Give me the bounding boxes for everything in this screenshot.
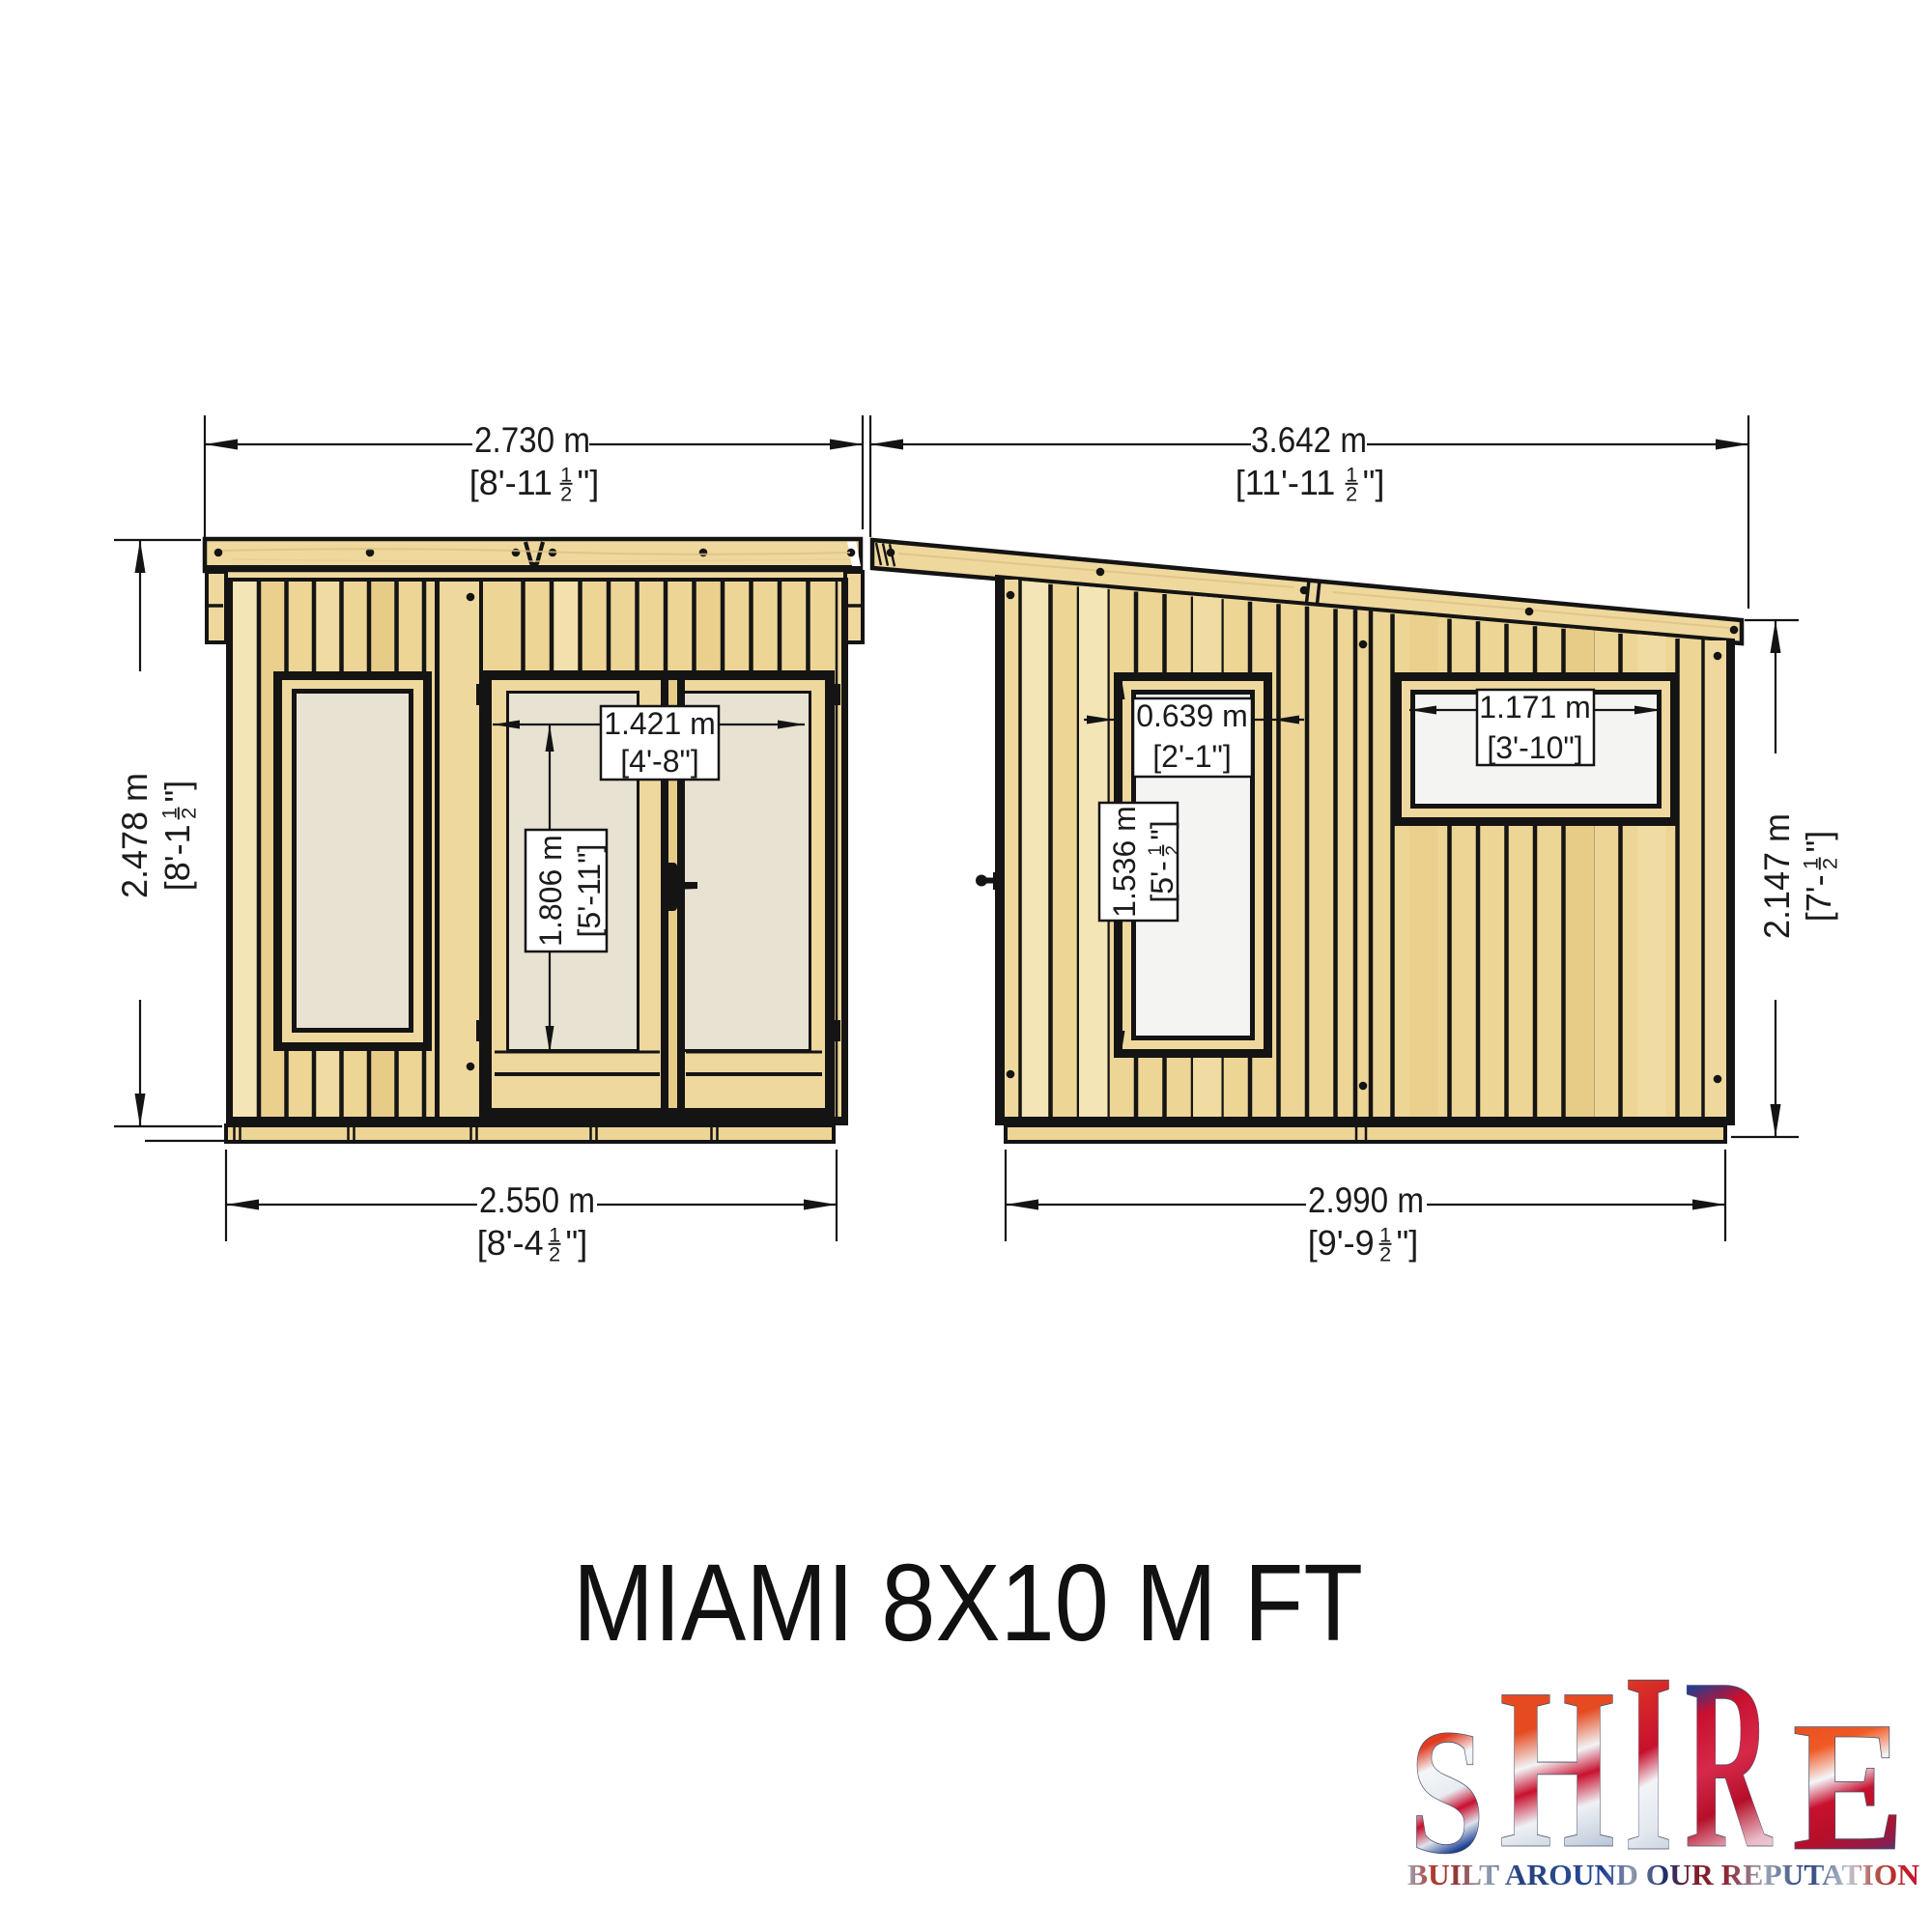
svg-text:2: 2: [1346, 482, 1357, 506]
svg-text:1.421 m: 1.421 m: [604, 706, 716, 741]
svg-text:1.806 m: 1.806 m: [533, 835, 568, 947]
svg-text:"]: "]: [566, 1223, 588, 1263]
svg-text:"]: "]: [157, 781, 197, 803]
svg-text:2: 2: [1379, 1242, 1391, 1266]
svg-text:2: 2: [1818, 858, 1842, 869]
svg-text:1.536 m: 1.536 m: [1107, 806, 1142, 918]
svg-text:[3'-10"]: [3'-10"]: [1487, 730, 1582, 765]
svg-text:[5'-11"]: [5'-11"]: [572, 844, 607, 938]
svg-text:2: 2: [1163, 845, 1183, 856]
svg-text:2: 2: [549, 1242, 560, 1266]
svg-text:"]: "]: [1145, 820, 1179, 839]
svg-text:2: 2: [177, 808, 201, 819]
svg-text:2: 2: [560, 482, 572, 506]
svg-text:0.639 m: 0.639 m: [1136, 698, 1248, 733]
svg-text:2.147 m: 2.147 m: [1757, 813, 1797, 939]
svg-text:[2'-1"]: [2'-1"]: [1152, 739, 1232, 774]
svg-text:[7'-: [7'-: [1799, 874, 1838, 922]
svg-text:2.730 m: 2.730 m: [474, 420, 590, 460]
svg-text:[4'-8"]: [4'-8"]: [620, 744, 699, 779]
svg-text:[9'-9: [9'-9: [1308, 1223, 1375, 1263]
svg-text:MIAMI 8X10 M FT: MIAMI 8X10 M FT: [573, 1542, 1363, 1663]
svg-text:2.550 m: 2.550 m: [479, 1180, 595, 1220]
svg-text:[11'-11: [11'-11: [1236, 463, 1336, 502]
svg-text:"]: "]: [1363, 463, 1385, 502]
svg-text:"]: "]: [1397, 1223, 1419, 1263]
svg-text:[8'-1: [8'-1: [157, 824, 197, 891]
svg-text:[8'-11: [8'-11: [469, 463, 553, 502]
svg-text:1.171 m: 1.171 m: [1479, 690, 1591, 724]
svg-text:"]: "]: [1799, 831, 1838, 853]
svg-text:2.990 m: 2.990 m: [1308, 1180, 1424, 1220]
svg-text:[5'-: [5'-: [1145, 861, 1179, 902]
svg-text:[8'-4: [8'-4: [477, 1223, 544, 1263]
svg-text:2.478 m: 2.478 m: [115, 773, 155, 898]
svg-text:BUILT AROUND OUR REPUTATION: BUILT AROUND OUR REPUTATION: [1407, 1858, 1919, 1891]
svg-text:"]: "]: [578, 463, 600, 502]
svg-text:3.642 m: 3.642 m: [1251, 420, 1367, 460]
